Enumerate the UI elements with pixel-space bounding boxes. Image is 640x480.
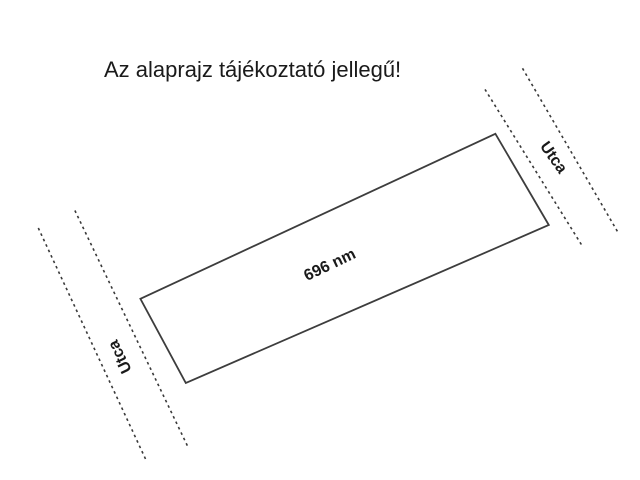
svg-text:Az alaprajz tájékoztató jelleg: Az alaprajz tájékoztató jellegű! [104,57,401,82]
